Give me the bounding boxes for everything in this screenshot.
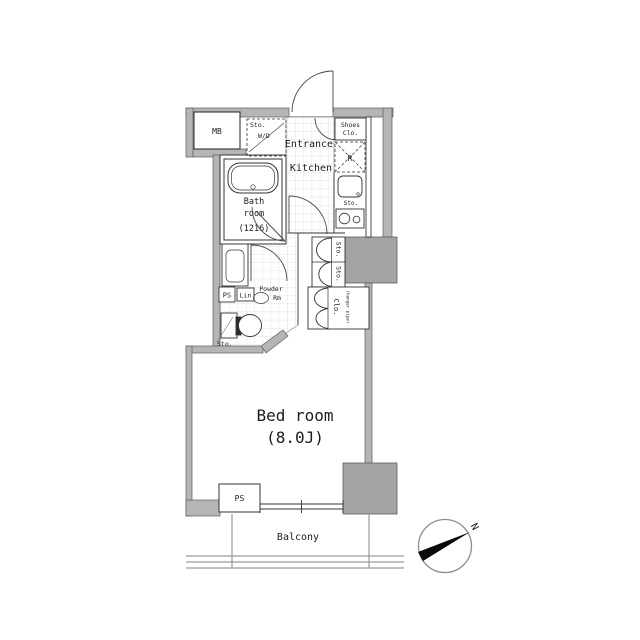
toilet-storage-label: Sto. — [217, 340, 233, 348]
entrance-door-swing — [292, 71, 333, 112]
toilet-tank — [221, 313, 237, 338]
fridge-label: R — [348, 154, 353, 163]
bath-label-3: (1216) — [239, 224, 270, 234]
wd-label-1: Sto. — [250, 121, 266, 129]
stove-burner-large — [339, 213, 350, 224]
wall-bedroom-left — [186, 346, 192, 516]
meter-box: MB — [194, 112, 240, 149]
entrance-kitchen-floor — [286, 117, 334, 233]
sink-storage-label: Sto. — [344, 200, 358, 207]
toilet-bowl — [239, 315, 262, 337]
floor-plan-drawing: MB Bath room (1216) Sto. W/D Shoes Clo. … — [0, 0, 640, 640]
meter-box-label: MB — [212, 127, 222, 136]
column-upper-right — [345, 237, 397, 283]
balcony-label: Balcony — [277, 532, 319, 543]
wall-mb-left — [186, 108, 193, 157]
wall-right-upper — [383, 108, 392, 237]
linen-label: Lin — [240, 292, 252, 300]
compass-north-label: N — [468, 522, 481, 532]
kitchen-sink — [338, 176, 362, 197]
column-lower-right — [343, 463, 397, 514]
storage-label-top: Sto. — [335, 242, 343, 258]
bedroom-label: Bed room — [256, 406, 333, 425]
shoes-closet-label-2: Clo. — [343, 130, 358, 137]
closet-note: (hanger pipe) — [346, 291, 351, 324]
floor-plan-page: MB Bath room (1216) Sto. W/D Shoes Clo. … — [0, 0, 640, 640]
compass: N — [418, 520, 480, 573]
shoes-closet-label-1: Shoes — [341, 122, 360, 129]
powder-label-1: Powder — [259, 285, 283, 293]
wd-label-2: W/D — [258, 132, 270, 140]
stove-burner-small — [353, 216, 360, 223]
entrance-label: Entrance — [285, 139, 333, 150]
storage-label-bottom: Sto. — [335, 266, 343, 282]
compass-needle — [418, 532, 470, 561]
wall-left-mid — [213, 155, 220, 351]
bath-label-1: Bath — [244, 197, 264, 207]
bedroom-size-label: (8.0J) — [266, 428, 324, 447]
closet-label: Clo. — [332, 299, 340, 316]
pipe-space-bottom-label: PS — [235, 494, 245, 503]
powder-label-2: Rm — [273, 294, 281, 302]
pipe-space-powder-label: PS — [223, 292, 231, 300]
wall-kitchen-right-inner — [366, 117, 371, 237]
balcony-window — [260, 500, 343, 513]
wall-bottom-left-block — [186, 500, 220, 516]
kitchen-label: Kitchen — [290, 163, 332, 174]
